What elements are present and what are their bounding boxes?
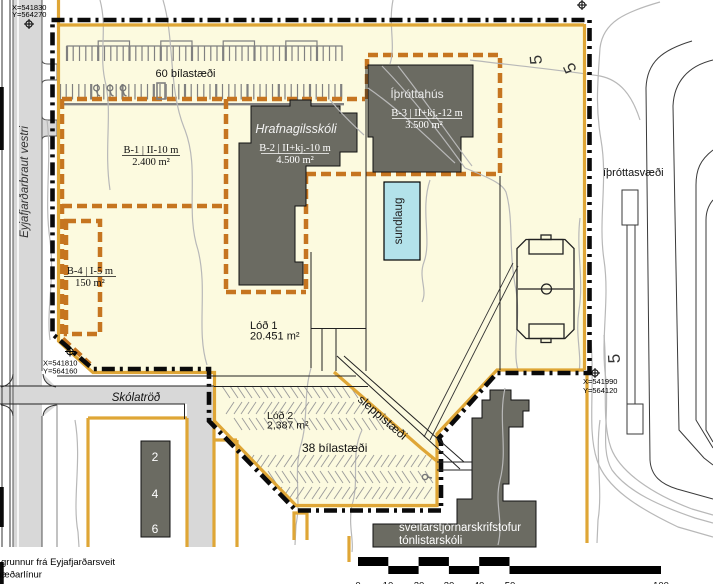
svg-text:100: 100: [653, 581, 669, 584]
svg-text:20.451 m²: 20.451 m²: [250, 331, 300, 343]
svg-text:B-3 | II+kj.-12 m: B-3 | II+kj.-12 m: [391, 108, 463, 119]
svg-text:2,387 m²: 2,387 m²: [267, 420, 309, 432]
svg-text:tónlistarskóli: tónlistarskóli: [399, 535, 462, 547]
svg-text:60 bílastæði: 60 bílastæði: [156, 68, 216, 80]
svg-text:6: 6: [152, 522, 159, 536]
svg-text:4: 4: [152, 487, 159, 501]
svg-text:B-4 | I-5 m: B-4 | I-5 m: [67, 266, 113, 277]
svg-text:150 m²: 150 m²: [75, 278, 105, 289]
svg-text:50: 50: [505, 581, 516, 584]
svg-text:38 bílastæði: 38 bílastæði: [302, 441, 367, 455]
svg-text:2: 2: [152, 450, 159, 464]
svg-text:íþróttasvæði: íþróttasvæði: [603, 167, 664, 179]
svg-text:Skólatröð: Skólatröð: [112, 392, 161, 404]
svg-text:grunnur frá Eyjafjarðarsveit: grunnur frá Eyjafjarðarsveit: [1, 557, 115, 568]
svg-text:Y=564120: Y=564120: [583, 386, 617, 395]
svg-text:sundlaug: sundlaug: [393, 198, 405, 245]
svg-text:0: 0: [355, 581, 360, 584]
svg-text:hæðarlínur: hæðarlínur: [0, 570, 42, 581]
svg-text:4.500 m²: 4.500 m²: [276, 155, 314, 166]
svg-text:Íþróttahús: Íþróttahús: [390, 86, 443, 101]
svg-text:3.500 m²: 3.500 m²: [405, 120, 443, 131]
svg-text:2.400 m²: 2.400 m²: [132, 157, 170, 168]
svg-text:20: 20: [414, 581, 425, 584]
svg-text:5: 5: [605, 353, 624, 363]
svg-text:Eyjafjarðarbraut vestri: Eyjafjarðarbraut vestri: [19, 126, 31, 238]
svg-text:5: 5: [526, 54, 546, 65]
svg-text:sveitarstjórnarskrifstofur: sveitarstjórnarskrifstofur: [399, 522, 521, 534]
svg-text:X=541990: X=541990: [583, 377, 617, 386]
svg-text:Hrafnagilsskóli: Hrafnagilsskóli: [255, 122, 338, 136]
svg-text:10: 10: [383, 581, 394, 584]
svg-text:Y=564160: Y=564160: [43, 367, 77, 376]
svg-text:B-1 | II-10 m: B-1 | II-10 m: [124, 145, 179, 156]
svg-text:30: 30: [444, 581, 455, 584]
svg-text:40: 40: [474, 581, 485, 584]
svg-text:Y=564270: Y=564270: [12, 10, 46, 19]
svg-text:B-2 | II+kj.-10 m: B-2 | II+kj.-10 m: [259, 143, 331, 154]
